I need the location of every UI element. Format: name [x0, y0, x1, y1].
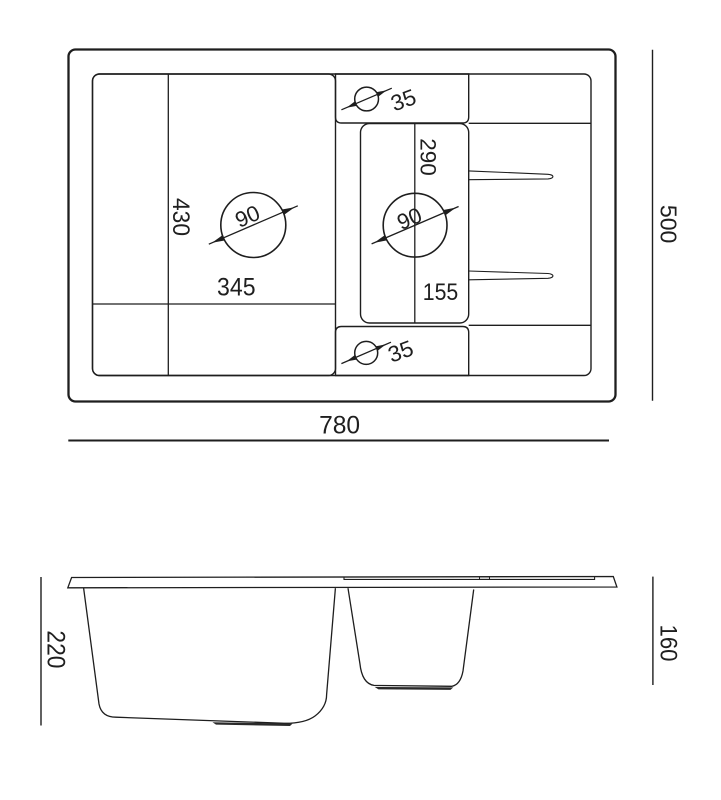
svg-text:345: 345 [217, 274, 256, 302]
svg-text:90: 90 [393, 202, 425, 235]
svg-text:290: 290 [415, 138, 440, 176]
svg-text:90: 90 [231, 200, 263, 233]
svg-text:155: 155 [423, 279, 459, 306]
svg-text:780: 780 [319, 412, 360, 440]
svg-text:430: 430 [167, 198, 194, 236]
svg-text:35: 35 [387, 84, 419, 116]
svg-text:220: 220 [41, 630, 69, 668]
svg-text:160: 160 [654, 625, 681, 662]
svg-text:35: 35 [385, 336, 417, 368]
svg-text:500: 500 [655, 205, 681, 244]
